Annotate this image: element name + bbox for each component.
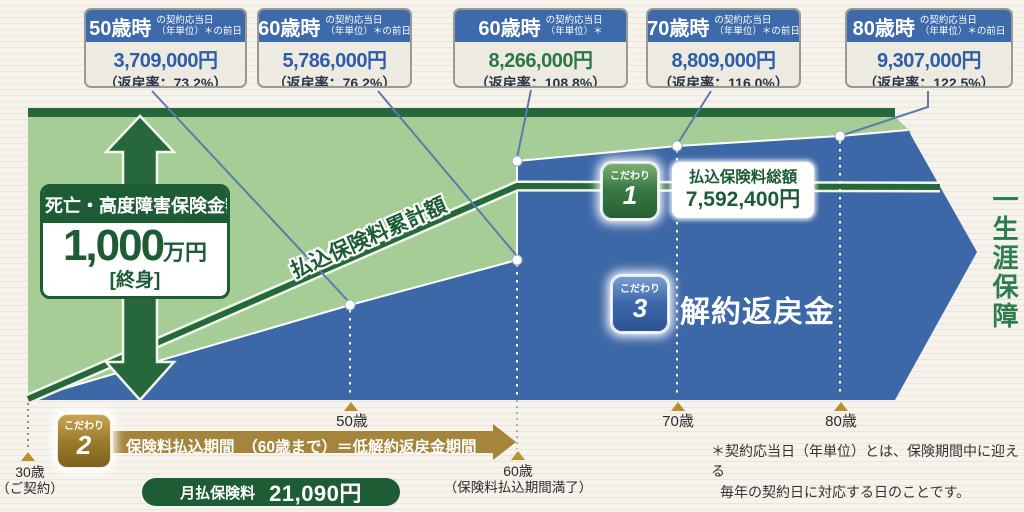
callout-age80-age: 80歳時 [853, 12, 915, 41]
callout-age50-amount: 3,709,000円 [86, 44, 245, 73]
callout-age70-note: の契約応当日（年単位）＊の前日 [714, 15, 800, 37]
age-label-30-sub: （ご契約） [0, 477, 64, 497]
callout-age60-rate: （返戻率：108.8%） [455, 73, 626, 88]
callout-age60-before-note: の契約応当日（年単位）＊の前日 [325, 15, 411, 37]
callout-age60-age: 60歳時 [478, 12, 540, 41]
callout-age60-body: 8,266,000円 （返戻率：108.8%） [455, 42, 626, 88]
dot-80 [835, 131, 845, 141]
callout-age70-rate: （返戻率：116.0%） [648, 73, 799, 88]
callout-age60-before-body: 5,786,000円 （返戻率：76.2%） [259, 42, 410, 88]
top-border-band [28, 108, 895, 117]
death-benefit-label: 死亡・高度障害保険金額 1,000万円 [終身] [40, 184, 230, 299]
monthly-premium-label: 月払保険料 [180, 482, 255, 503]
callout-age80-rate: （返戻率：122.5%） [847, 73, 1011, 88]
callout-age50-age: 50歳時 [89, 12, 151, 41]
age-label-50: 50歳 [336, 410, 368, 431]
callout-age60-before-amount: 5,786,000円 [259, 44, 410, 73]
lifetime-coverage-label: 一生涯保障 [986, 186, 1023, 331]
callout-age80-amount: 9,307,000円 [847, 44, 1011, 73]
callout-age60-before-age: 60歳時 [258, 12, 320, 41]
insurance-plan-diagram: 50歳時 の契約応当日（年単位）＊の前日 3,709,000円 （返戻率：73.… [0, 0, 1024, 512]
dot-60 [512, 156, 522, 166]
kodawari-1-badge: こだわり 1 [602, 163, 658, 219]
age-label-60-sub: （保険料払込期間満了） [444, 476, 593, 496]
callout-age50: 50歳時 の契約応当日（年単位）＊の前日 3,709,000円 （返戻率：73.… [84, 8, 247, 88]
death-benefit-body: 1,000万円 [終身] [43, 223, 227, 296]
callout-age60-header: 60歳時 の契約応当日（年単位）＊ [455, 10, 626, 42]
callout-age60-before-header: 60歳時 の契約応当日（年単位）＊の前日 [259, 10, 410, 42]
footnote-line1: ＊契約応当日（年単位）とは、保険期間中に迎える [711, 441, 1024, 482]
age-label-70: 70歳 [662, 410, 694, 431]
callout-age80-header: 80歳時 の契約応当日（年単位）＊の前日 [847, 10, 1011, 42]
callout-age80: 80歳時 の契約応当日（年単位）＊の前日 9,307,000円 （返戻率：122… [845, 8, 1013, 88]
payment-period-arrowhead-icon [493, 424, 516, 460]
callout-age60-before: 60歳時 の契約応当日（年単位）＊の前日 5,786,000円 （返戻率：76.… [257, 8, 412, 88]
kodawari-3-badge: こだわり 3 [612, 276, 668, 332]
dot-60pre [512, 255, 522, 265]
callout-age50-header: 50歳時 の契約応当日（年単位）＊の前日 [86, 10, 245, 42]
total-premium-amount: 7,592,400円 [686, 187, 800, 212]
callout-age70-age: 70歳時 [647, 12, 709, 41]
callout-age60-note: の契約応当日（年単位）＊ [546, 15, 603, 37]
marker-30-icon [21, 452, 35, 461]
dot-70 [672, 141, 682, 151]
footnote-line2: 毎年の契約日に対応する日のことです。 [711, 482, 1024, 502]
death-benefit-title: 死亡・高度障害保険金額 [43, 187, 227, 223]
callout-age80-note: の契約応当日（年単位）＊の前日 [920, 15, 1006, 37]
callout-age70-amount: 8,809,000円 [648, 44, 799, 73]
marker-60-icon [511, 451, 525, 460]
death-benefit-amount: 1,000 [63, 221, 163, 270]
kodawari-2-badge-number: 2 [77, 432, 91, 459]
callout-age60: 60歳時 の契約応当日（年単位）＊ 8,266,000円 （返戻率：108.8%… [453, 8, 628, 88]
callout-age50-rate: （返戻率：73.2%） [86, 73, 245, 88]
callout-age70-header: 70歳時 の契約応当日（年単位）＊の前日 [648, 10, 799, 42]
footnote: ＊契約応当日（年単位）とは、保険期間中に迎える 毎年の契約日に対応する日のことで… [711, 441, 1024, 502]
payment-period-band-label: 保険料払込期間 （60歳まで）＝低解約返戻金期間 [126, 435, 477, 457]
callout-age70-body: 8,809,000円 （返戻率：116.0%） [648, 42, 799, 88]
monthly-premium-amount: 21,090円 [269, 476, 362, 508]
callout-age50-note: の契約応当日（年単位）＊の前日 [156, 15, 242, 37]
dot-50 [345, 300, 355, 310]
kodawari-1-badge-number: 1 [623, 182, 637, 209]
callout-age50-body: 3,709,000円 （返戻率：73.2%） [86, 42, 245, 88]
callout-age80-body: 9,307,000円 （返戻率：122.5%） [847, 42, 1011, 88]
callout-age60-before-rate: （返戻率：76.2%） [259, 73, 410, 88]
callout-age70: 70歳時 の契約応当日（年単位）＊の前日 8,809,000円 （返戻率：116… [646, 8, 801, 88]
callout-age60-amount: 8,266,000円 [455, 44, 626, 73]
death-benefit-unit: 万円 [163, 240, 207, 265]
surrender-value-label: 解約返戻金 [680, 287, 835, 331]
monthly-premium-pill: 月払保険料 21,090円 [142, 478, 400, 506]
total-premium-box: 払込保険料総額 7,592,400円 [672, 162, 814, 218]
age-label-80: 80歳 [825, 410, 857, 431]
kodawari-3-badge-number: 3 [633, 295, 647, 322]
kodawari-2-badge: こだわり 2 [57, 414, 111, 468]
total-premium-title: 払込保険料総額 [689, 168, 798, 187]
